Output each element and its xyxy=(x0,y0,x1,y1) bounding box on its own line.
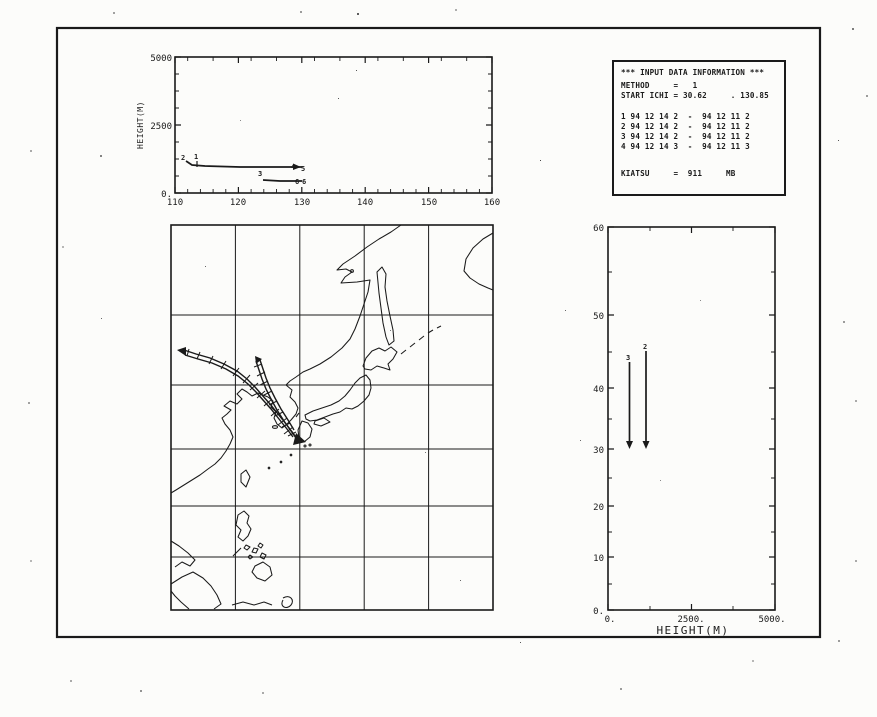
info-data-row: 3 94 12 14 2 - 94 12 11 2 xyxy=(621,132,784,142)
right-traj2-top-label: 2 xyxy=(643,343,647,351)
map-grid xyxy=(171,225,493,610)
right-xtick-5000: 5000. xyxy=(758,615,785,625)
info-start-ichi-line: START ICHI = 30.62 . 130.85 xyxy=(621,91,784,101)
right-chart-trajectory-3: 3 xyxy=(626,354,633,449)
coast-honshu xyxy=(305,375,371,421)
input-data-information-box: *** INPUT DATA INFORMATION *** METHOD = … xyxy=(612,60,786,196)
right-ytick-60: 60 xyxy=(593,224,604,234)
top-ytick-2500: 2500 xyxy=(150,122,172,132)
top-chart-trajectory-2: 2 1 4 5 xyxy=(181,153,305,173)
coast-hokkaido xyxy=(363,347,397,370)
right-xtick-0: 0. xyxy=(605,615,616,625)
top-chart-y-axis-title: HEIGHT(M) xyxy=(136,101,145,149)
top-chart-frame xyxy=(175,57,492,193)
right-chart-major-ticks xyxy=(608,227,775,610)
coast-borneo xyxy=(171,572,221,609)
traj2-tick-label: 1 xyxy=(194,153,198,161)
top-xtick-130: 130 xyxy=(294,198,310,208)
top-chart-minor-ticks xyxy=(175,57,492,193)
map-coastlines xyxy=(171,225,493,609)
island-north-dot xyxy=(351,270,354,273)
coast-indochina xyxy=(171,541,195,567)
island-tane xyxy=(309,444,311,446)
traj3-end-label-b: 6 xyxy=(302,178,306,186)
info-data-row: 4 94 12 14 3 - 94 12 11 3 xyxy=(621,142,784,152)
island-cheju xyxy=(273,426,278,429)
top-ytick-5000: 5000 xyxy=(150,54,172,64)
info-kiatsu-line: KIATSU = 911 MB xyxy=(621,169,784,179)
top-xtick-150: 150 xyxy=(421,198,437,208)
right-ytick-40: 40 xyxy=(593,385,604,395)
top-xtick-160: 160 xyxy=(484,198,500,208)
island-ryukyu-2 xyxy=(280,461,282,463)
coast-shikoku xyxy=(314,418,330,426)
info-box-spacer xyxy=(621,101,784,112)
top-xtick-120: 120 xyxy=(230,198,246,208)
info-data-row: 1 94 12 14 2 - 94 12 11 2 xyxy=(621,112,784,122)
island-yaku xyxy=(304,445,306,447)
info-data-row: 2 94 12 14 2 - 94 12 11 2 xyxy=(621,122,784,132)
traj2-end-label-a: 4 xyxy=(291,163,295,171)
right-ytick-30: 30 xyxy=(593,446,604,456)
right-ytick-0: 0. xyxy=(593,607,604,617)
map-frame xyxy=(171,225,493,610)
height-longitude-chart: 5000 2500 0. HEIGHT(M) 110 120 130 140 1… xyxy=(136,54,500,208)
right-chart-frame xyxy=(608,227,775,610)
top-xtick-140: 140 xyxy=(357,198,373,208)
right-ytick-50: 50 xyxy=(593,312,604,322)
scanned-plot-page: 5000 2500 0. HEIGHT(M) 110 120 130 140 1… xyxy=(0,0,877,717)
info-box-title: *** INPUT DATA INFORMATION *** xyxy=(621,68,784,78)
right-ytick-20: 20 xyxy=(593,503,604,513)
east-asia-map xyxy=(171,225,493,610)
right-traj2-end-arrow xyxy=(643,441,650,449)
info-box-spacer xyxy=(621,152,784,169)
traj3-end-label-a: 6 xyxy=(295,178,299,186)
coast-palawan xyxy=(233,548,241,556)
island-ryukyu-3 xyxy=(268,467,270,469)
right-ytick-10: 10 xyxy=(593,554,604,564)
top-xtick-110: 110 xyxy=(167,198,183,208)
map-traj2-start-arrow xyxy=(177,347,186,356)
coast-luzon xyxy=(236,511,251,541)
right-traj3-top-label: 3 xyxy=(626,354,630,362)
top-chart-trajectory-3: 3 6 6 xyxy=(258,170,306,186)
right-chart-minor-ticks xyxy=(608,227,775,610)
info-method-line: METHOD = 1 xyxy=(621,81,784,91)
right-chart-x-axis-title: HEIGHT(M) xyxy=(656,624,729,637)
coast-bottom-islands xyxy=(232,597,292,608)
coast-kamchatka xyxy=(464,233,493,290)
coast-sakhalin xyxy=(377,267,394,345)
coast-kuril-islands xyxy=(401,326,441,354)
traj2-end-label-b: 5 xyxy=(301,165,305,173)
top-chart-major-ticks xyxy=(175,57,492,193)
traj3-start-label: 3 xyxy=(258,170,262,178)
right-chart-trajectory-2: 2 xyxy=(643,343,650,449)
traj2-start-label: 2 xyxy=(181,154,185,162)
latitude-height-chart: 60 50 40 30 20 10 0. 0. 2500. 5000. HEIG… xyxy=(593,224,785,637)
island-ryukyu-1 xyxy=(290,454,292,456)
coast-continent xyxy=(171,225,401,493)
coast-mindanao xyxy=(252,562,272,581)
coast-taiwan xyxy=(241,470,250,487)
right-traj3-end-arrow xyxy=(626,441,633,449)
